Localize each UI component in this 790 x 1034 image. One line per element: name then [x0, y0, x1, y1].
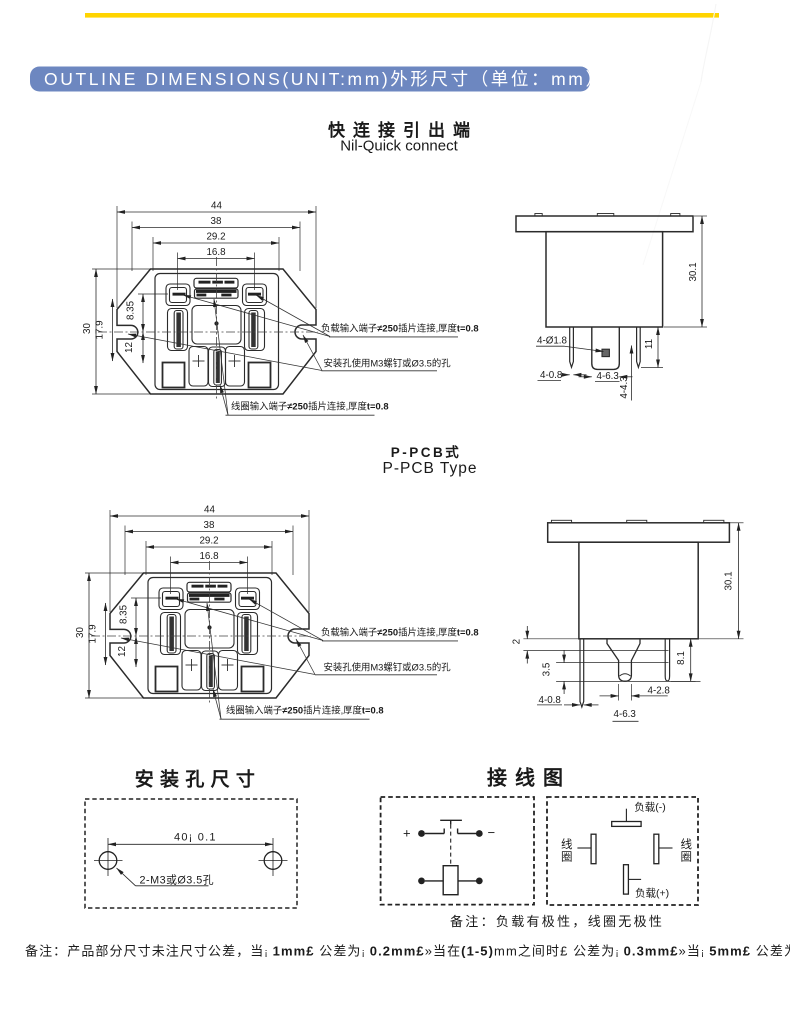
svg-text:P-PCB式: P-PCB式	[391, 444, 462, 460]
svg-text:4-6.3: 4-6.3	[614, 709, 637, 720]
svg-text:8.1: 8.1	[676, 651, 687, 665]
svg-text:4-4.3: 4-4.3	[619, 376, 630, 399]
svg-text:线: 线	[561, 837, 573, 851]
svg-text:负载(+): 负载(+)	[635, 887, 669, 900]
svg-text:负载(-): 负载(-)	[634, 801, 666, 814]
svg-text:接线图: 接线图	[487, 766, 571, 790]
svg-text:30.1: 30.1	[724, 571, 735, 590]
svg-text:P-PCB Type: P-PCB Type	[382, 460, 477, 477]
svg-text:圈: 圈	[681, 851, 693, 864]
svg-text:Nil-Quick connect: Nil-Quick connect	[340, 138, 458, 155]
svg-text:OUTLINE DIMENSIONS(UNIT:mm)外形尺: OUTLINE DIMENSIONS(UNIT:mm)外形尺寸（单位：mm）	[44, 69, 606, 89]
svg-text:安装孔使用M3螺钉或Ø3.5的孔: 安装孔使用M3螺钉或Ø3.5的孔	[324, 358, 452, 369]
svg-text:4-6.3: 4-6.3	[597, 371, 620, 382]
svg-text:安装孔使用M3螺钉或Ø3.5的孔: 安装孔使用M3螺钉或Ø3.5的孔	[324, 662, 452, 673]
svg-text:4-0.8: 4-0.8	[540, 370, 563, 381]
svg-text:11: 11	[644, 339, 655, 349]
svg-text:30.1: 30.1	[688, 262, 699, 281]
svg-text:线: 线	[681, 837, 693, 851]
svg-text:4-Ø1.8: 4-Ø1.8	[537, 336, 568, 347]
svg-text:备注：产品部分尺寸未注尺寸公差，当¡ 1mm£ 公差为¡: 备注：产品部分尺寸未注尺寸公差，当¡ 1mm£ 公差为¡ 0.2mm£»当在(1…	[25, 944, 790, 959]
svg-text:−: −	[488, 825, 496, 840]
svg-text:4-2.8: 4-2.8	[648, 686, 671, 697]
svg-text:40¡ 0.1: 40¡ 0.1	[174, 832, 217, 844]
svg-text:3.5: 3.5	[542, 662, 553, 676]
svg-text:备注：负载有极性，线圈无极性: 备注：负载有极性，线圈无极性	[450, 914, 664, 929]
svg-text:线圈输入端子≠250插片连接,厚度t=0.8: 线圈输入端子≠250插片连接,厚度t=0.8	[226, 705, 384, 716]
svg-text:负载输入端子≠250插片连接,厚度t=0.8: 负载输入端子≠250插片连接,厚度t=0.8	[321, 627, 479, 638]
svg-text:4-0.8: 4-0.8	[539, 695, 562, 706]
svg-text:+: +	[403, 826, 411, 841]
svg-text:负载输入端子≠250插片连接,厚度t=0.8: 负载输入端子≠250插片连接,厚度t=0.8	[321, 323, 479, 334]
svg-text:圈: 圈	[561, 851, 573, 864]
svg-text:安装孔尺寸: 安装孔尺寸	[135, 768, 262, 791]
svg-text:2: 2	[512, 639, 523, 644]
svg-text:2-M3或Ø3.5孔: 2-M3或Ø3.5孔	[140, 874, 215, 887]
svg-text:线圈输入端子≠250插片连接,厚度t=0.8: 线圈输入端子≠250插片连接,厚度t=0.8	[231, 401, 389, 412]
